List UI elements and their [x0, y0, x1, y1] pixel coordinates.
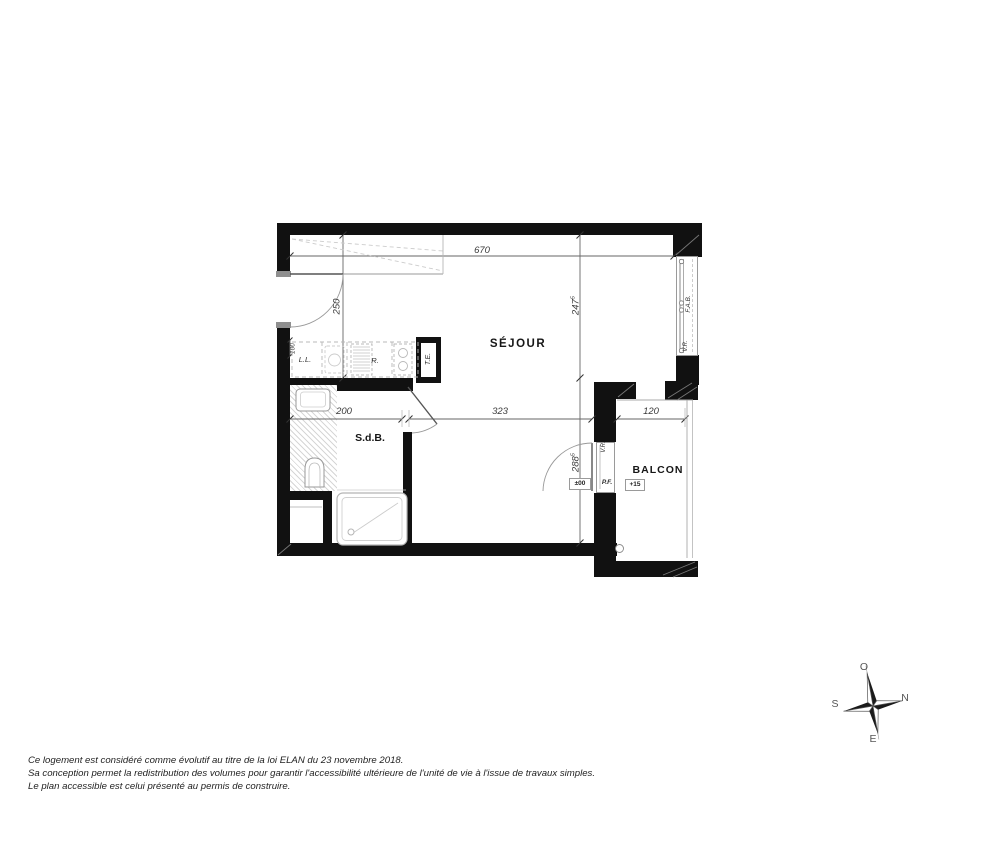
window-fab-glazing — [600, 259, 693, 489]
toilet — [305, 458, 324, 487]
dim-balcon-width: 120 — [621, 406, 681, 417]
label-french-door: P.F. — [598, 478, 616, 488]
shower — [337, 490, 407, 545]
label-fridge: R. — [368, 356, 382, 366]
footer-line-2: Sa conception permet la redistribution d… — [28, 767, 595, 780]
dim-total-width: 670 — [452, 245, 512, 256]
room-label-sejour: SÉJOUR — [478, 338, 558, 350]
label-window-fab: F.A.B. — [684, 290, 694, 318]
label-shutter-window: V.R. — [681, 337, 691, 355]
compass-south-label: S — [828, 698, 842, 710]
label-washing-machine: L.L. — [295, 355, 315, 365]
compass-east-label: E — [866, 733, 880, 745]
compass-west-label: O — [857, 661, 871, 673]
footer-disclaimer: Ce logement est considéré comme évolutif… — [28, 754, 595, 793]
plan-linework — [0, 0, 1000, 857]
floor-plan-page: SÉJOUR S.d.B. BALCON 670 250 2475 2885 2… — [0, 0, 1000, 857]
sdb-door — [408, 387, 437, 433]
label-shutter-door: V.R. — [599, 438, 609, 456]
footer-line-1: Ce logement est considéré comme évolutif… — [28, 754, 595, 767]
dim-sejour-width: 323 — [470, 406, 530, 417]
room-label-sdb: S.d.B. — [335, 432, 405, 444]
dim-entry-depth: 250 — [332, 277, 343, 337]
level-badge-balcony: +15 — [625, 479, 645, 491]
room-label-balcon: BALCON — [618, 464, 698, 476]
footer-line-3: Le plan accessible est celui présenté au… — [28, 780, 595, 793]
dim-sejour-height: 2475 — [568, 276, 581, 336]
entry-zone-lines — [290, 235, 443, 274]
label-electrical-panel: T.E. — [424, 347, 434, 371]
compass-north-label: N — [898, 692, 912, 704]
level-badge-interior: ±00 — [569, 478, 591, 490]
dim-sdb-width: 200 — [314, 406, 374, 417]
